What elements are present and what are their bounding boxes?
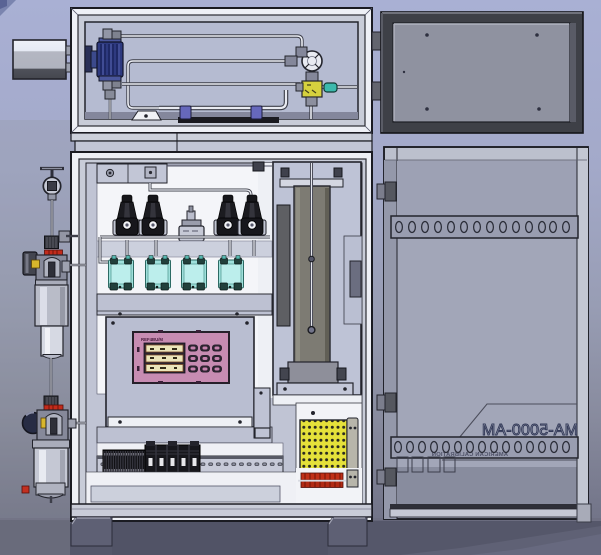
- svg-text:REF4BU/M: REF4BU/M: [141, 337, 163, 342]
